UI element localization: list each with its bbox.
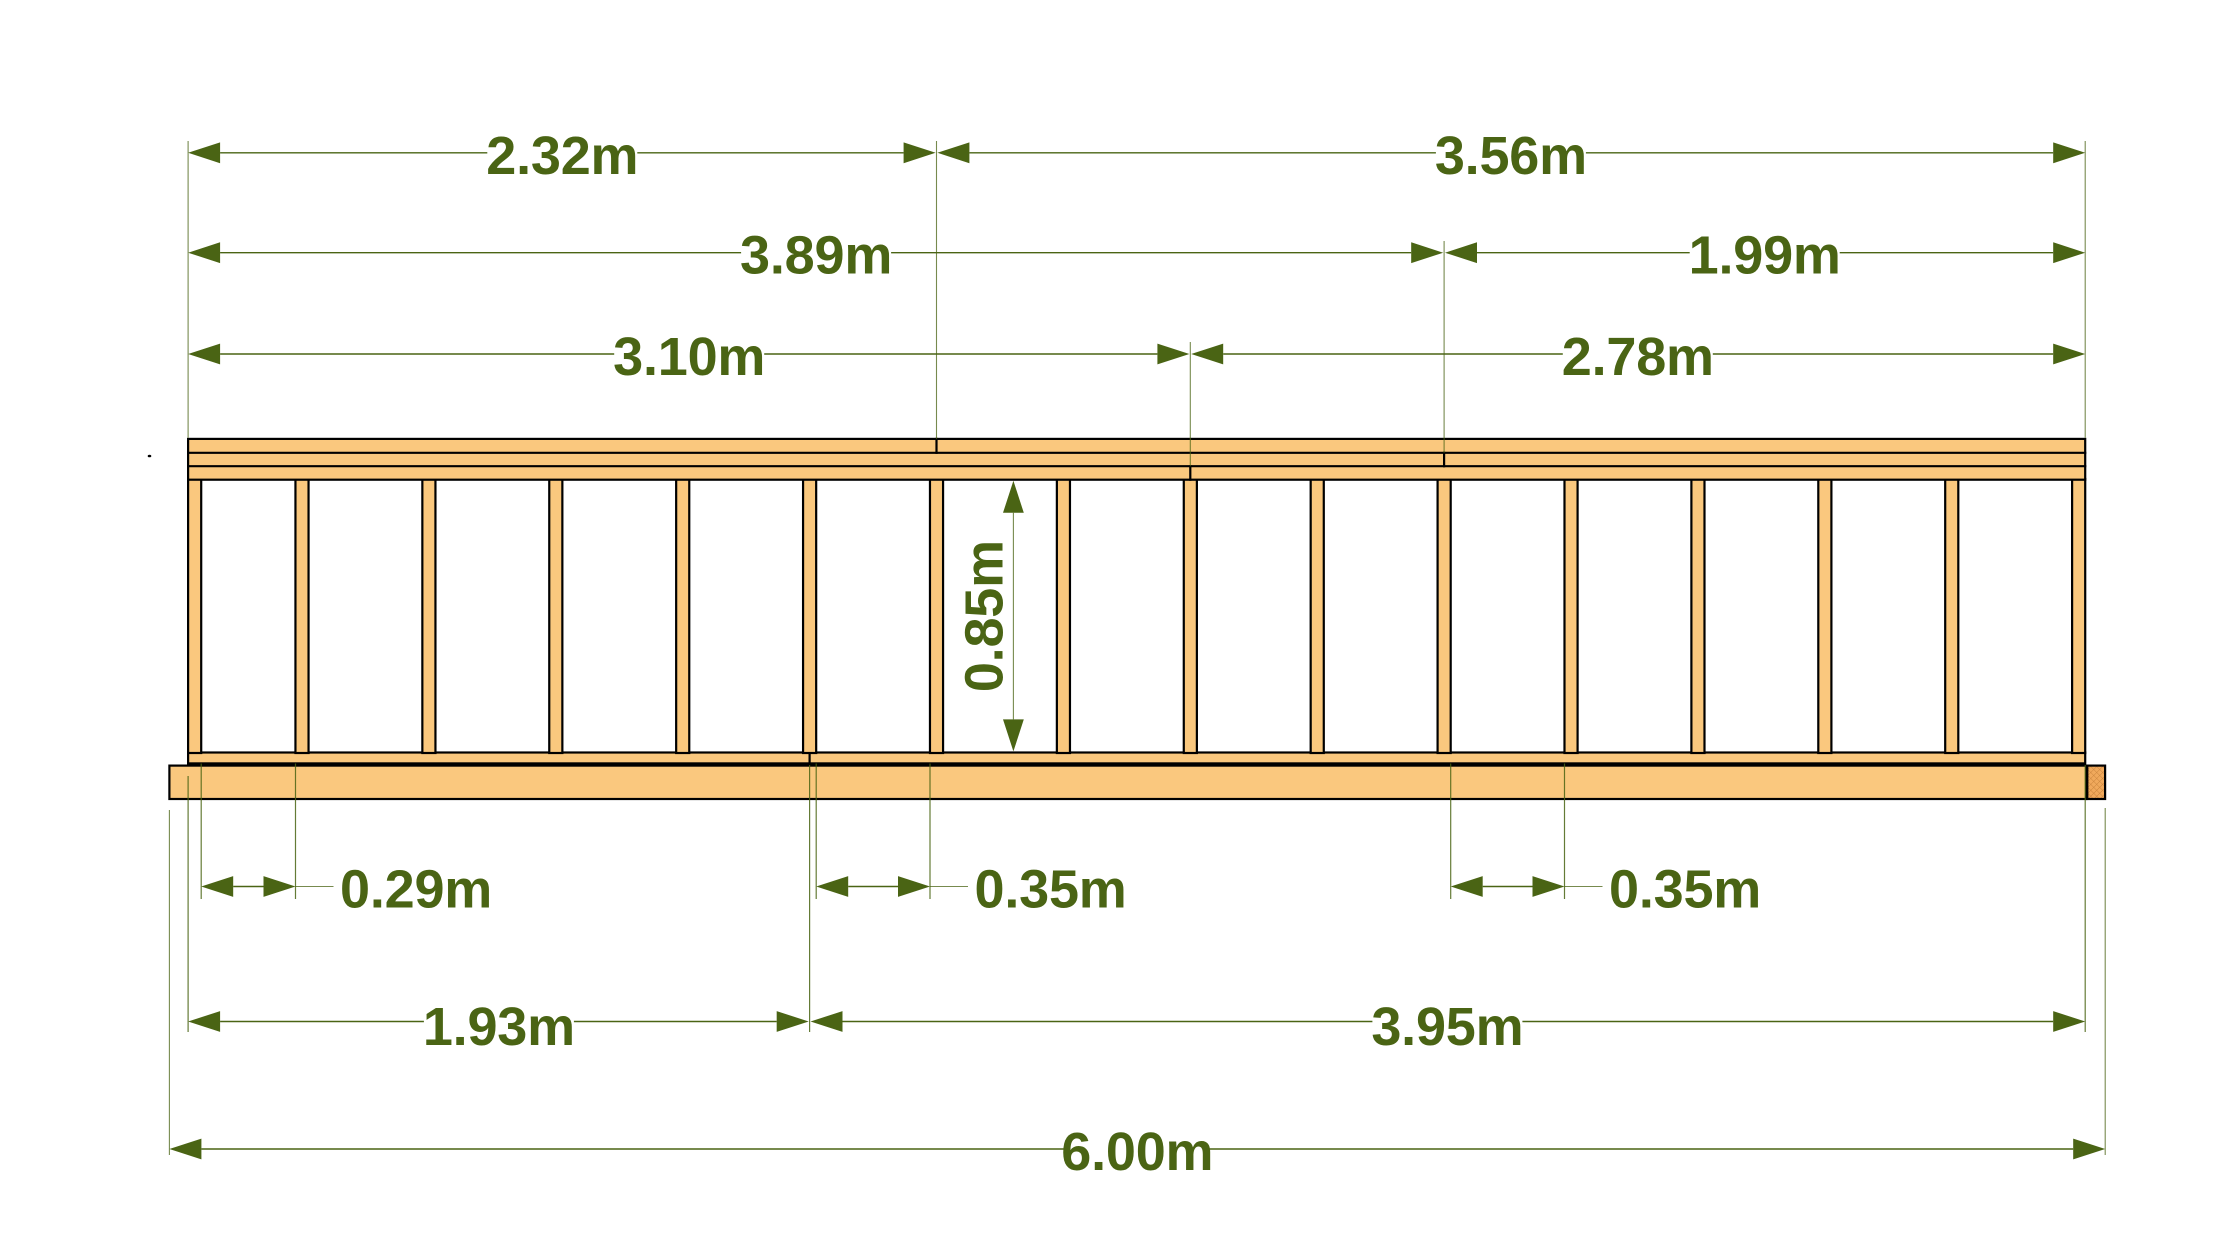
svg-text:2.78m: 2.78m xyxy=(1562,327,1714,387)
svg-text:0.85m: 0.85m xyxy=(955,540,1015,692)
svg-text:6.00m: 6.00m xyxy=(1061,1122,1213,1182)
svg-text:1.99m: 1.99m xyxy=(1689,226,1841,286)
svg-text:2.32m: 2.32m xyxy=(486,126,638,186)
svg-text:3.10m: 3.10m xyxy=(613,327,765,387)
svg-text:0.35m: 0.35m xyxy=(1609,860,1761,920)
svg-text:1.93m: 1.93m xyxy=(423,997,575,1057)
svg-text:0.35m: 0.35m xyxy=(975,860,1127,920)
svg-text:3.56m: 3.56m xyxy=(1435,126,1587,186)
svg-text:0.29m: 0.29m xyxy=(340,860,492,920)
svg-text:3.89m: 3.89m xyxy=(740,226,892,286)
svg-text:3.95m: 3.95m xyxy=(1371,997,1523,1057)
